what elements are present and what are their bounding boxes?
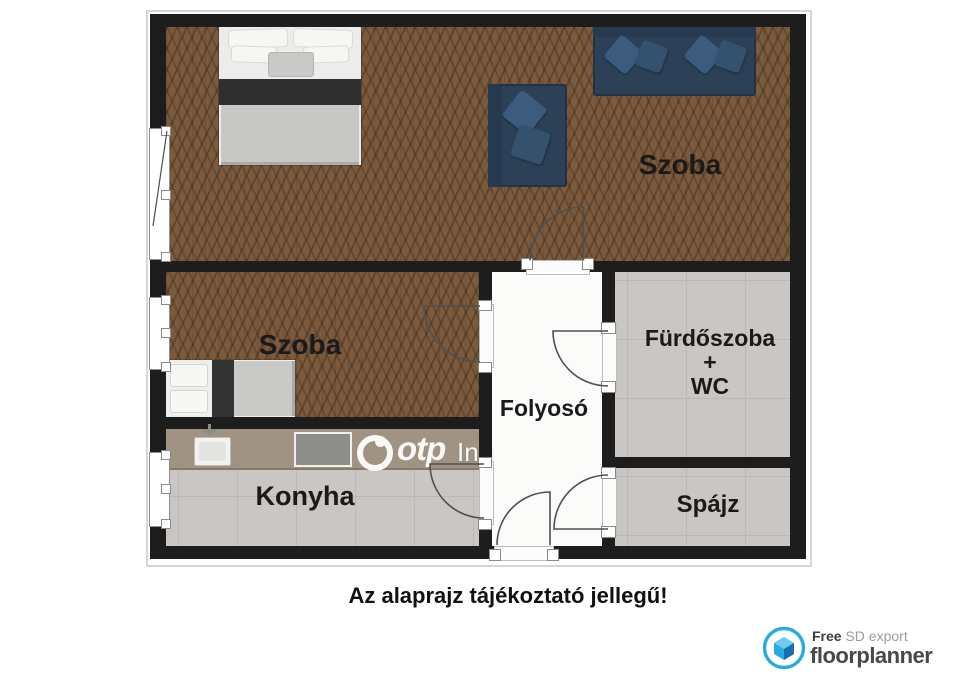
sink-bowl <box>199 442 226 461</box>
door-hinge <box>478 519 492 530</box>
door-hinge <box>547 549 559 561</box>
room-label-spajz: Spájz <box>638 491 778 519</box>
room-label-szoba-left: Szoba <box>230 329 370 361</box>
door-hinge <box>478 362 492 373</box>
watermark-brand-text: otp <box>397 430 445 468</box>
door-szoba-left <box>479 304 494 368</box>
sofa-cushion <box>634 39 669 74</box>
window-handle <box>161 252 171 262</box>
bed-cover-band <box>219 79 361 105</box>
single-bed <box>166 360 295 417</box>
door-szoba-top <box>526 260 590 275</box>
floorplan-image: otp Ing <box>0 0 960 679</box>
disclaimer-text: Az alaprajz tájékoztató jellegű! <box>208 583 808 609</box>
window-handle <box>161 126 171 136</box>
room-label-line: Fürdőszoba <box>630 326 790 350</box>
door-hinge <box>478 457 492 468</box>
cooktop <box>294 432 352 467</box>
door-hinge <box>582 258 594 270</box>
logo-brand-label: floorplanner <box>810 643 932 669</box>
room-label-line: WC <box>630 374 790 398</box>
floorplanner-logo-icon <box>762 626 806 670</box>
bed-pillow <box>268 52 314 77</box>
floorplanner-logo: Free SD export floorplanner <box>762 626 952 674</box>
room-label-szoba-top: Szoba <box>610 149 750 181</box>
wall-right <box>790 14 806 559</box>
door-konyha <box>479 461 494 525</box>
wall-interior-horizontal-3 <box>602 457 806 468</box>
room-label-furdoszoba: Fürdőszoba + WC <box>630 326 790 398</box>
bed-blanket <box>234 361 295 416</box>
kitchen-sink <box>194 437 231 466</box>
door-hinge <box>601 322 616 334</box>
logo-sd-export-label: SD export <box>842 628 908 644</box>
door-hinge <box>601 467 616 479</box>
door-hinge <box>489 549 501 561</box>
otp-watermark: otp Ing <box>354 430 524 474</box>
room-label-line: + <box>630 350 790 374</box>
room-label-konyha: Konyha <box>230 481 380 512</box>
window-handle <box>161 484 171 494</box>
bed-pillow <box>170 390 208 413</box>
bed-blanket <box>221 105 359 165</box>
bed-cover-band <box>212 360 234 417</box>
wall-interior-horizontal-1 <box>150 261 806 272</box>
door-entrance <box>494 546 554 561</box>
bed-pillow <box>170 364 208 387</box>
door-hinge <box>521 258 533 270</box>
door-hinge <box>601 526 616 538</box>
sofa-cushion <box>510 124 552 166</box>
sofa-small <box>488 84 567 187</box>
window-handle <box>161 295 171 305</box>
window-handle <box>161 362 171 372</box>
double-bed <box>219 26 361 165</box>
sofa-large <box>593 24 756 96</box>
window-handle <box>161 328 171 338</box>
otp-logo-icon <box>375 436 386 447</box>
wall-top <box>150 14 806 27</box>
faucet-icon <box>208 424 211 435</box>
door-hinge <box>478 300 492 311</box>
window-handle <box>161 450 171 460</box>
window-handle <box>161 519 171 529</box>
window-handle <box>161 190 171 200</box>
sofa-cushion <box>713 39 748 74</box>
wall-interior-horizontal-2 <box>150 417 492 429</box>
door-hinge <box>601 381 616 393</box>
wall-bottom <box>150 546 806 559</box>
sofa-backrest <box>488 84 502 187</box>
logo-export-label: Free SD export <box>812 628 908 644</box>
room-label-folyoso: Folyosó <box>474 395 614 422</box>
logo-free-label: Free <box>812 628 842 644</box>
